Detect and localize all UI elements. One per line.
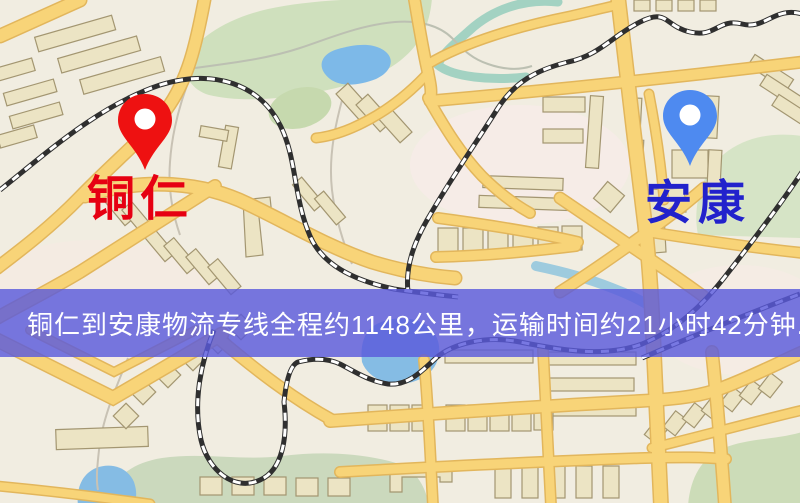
origin-pin-hole	[135, 109, 156, 130]
origin-pin-body[interactable]	[118, 94, 172, 170]
destination-pin-icon[interactable]	[660, 88, 720, 168]
route-info-banner: 铜仁到安康物流专线全程约1148公里，运输时间约21小时42分钟.	[0, 289, 800, 357]
map-view[interactable]: 铜仁 安康 铜仁到安康物流专线全程约1148公里，运输时间约21小时42分钟.	[0, 0, 800, 503]
origin-label: 铜仁	[87, 176, 193, 224]
map-background	[0, 0, 800, 503]
route-info-text: 铜仁到安康物流专线全程约1148公里，运输时间约21小时42分钟.	[0, 305, 800, 342]
destination-pin-body[interactable]	[663, 90, 717, 166]
destination-label: 安康	[645, 179, 751, 226]
destination-pin-hole	[680, 105, 701, 126]
origin-pin-icon[interactable]	[115, 92, 175, 172]
